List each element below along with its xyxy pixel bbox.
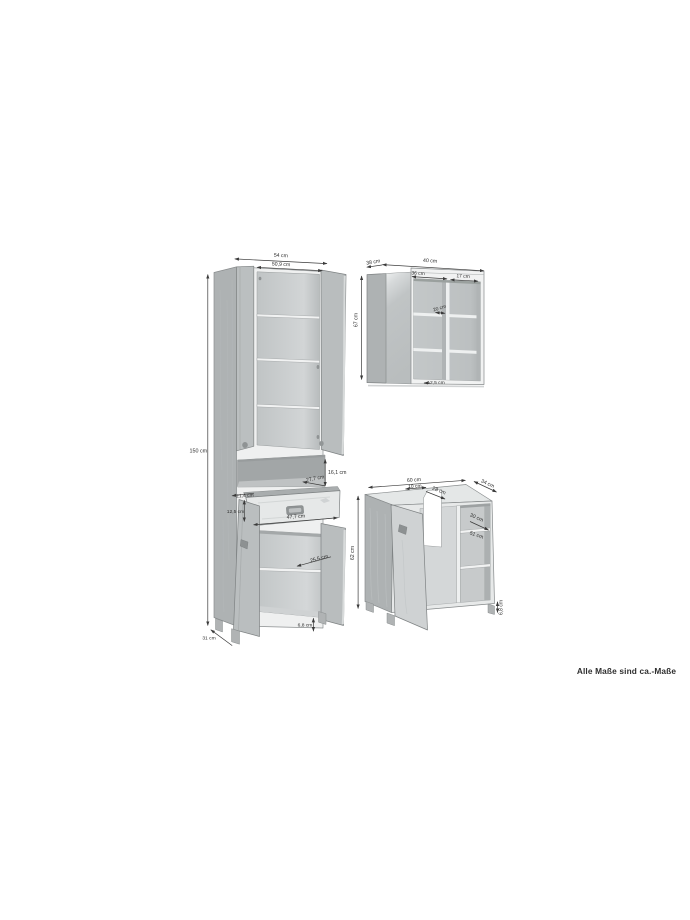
svg-text:150 cm: 150 cm: [189, 448, 207, 454]
svg-text:40 cm: 40 cm: [423, 258, 437, 265]
svg-text:17 cm: 17 cm: [456, 273, 470, 280]
svg-text:6,8 cm: 6,8 cm: [298, 623, 313, 629]
svg-text:60 cm: 60 cm: [407, 477, 422, 484]
svg-text:36 cm: 36 cm: [411, 270, 425, 277]
svg-text:12,5 cm: 12,5 cm: [427, 380, 444, 386]
svg-text:62 cm: 62 cm: [350, 546, 356, 560]
svg-text:50,9 cm: 50,9 cm: [272, 261, 291, 268]
svg-text:67 cm: 67 cm: [354, 313, 360, 327]
svg-text:10 cm: 10 cm: [408, 483, 422, 490]
svg-text:12,5 cm: 12,5 cm: [227, 509, 244, 515]
svg-text:Alle Maße sind ca.-Maße: Alle Maße sind ca.-Maße: [577, 666, 677, 676]
svg-text:6,8 cm: 6,8 cm: [499, 600, 505, 615]
svg-text:31 cm: 31 cm: [202, 636, 215, 642]
svg-text:54 cm: 54 cm: [274, 253, 288, 260]
svg-text:21,4 cm: 21,4 cm: [236, 493, 254, 500]
svg-text:16,1 cm: 16,1 cm: [328, 470, 346, 476]
